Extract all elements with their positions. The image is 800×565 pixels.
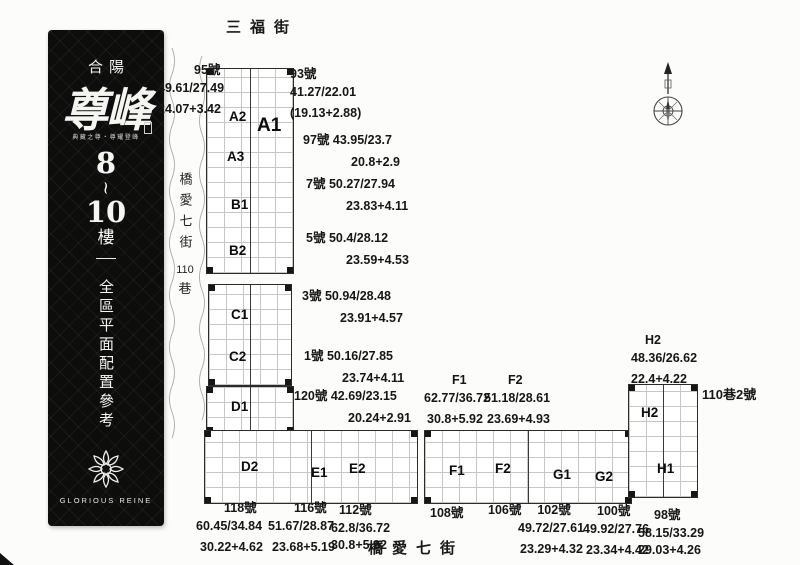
- building-block-h-plan: H2 H1: [628, 384, 698, 498]
- unit-label-h2: H2: [641, 405, 658, 420]
- annotation-h2: H2 48.36/26.62 22.4+4.22: [631, 332, 697, 389]
- unit-label-d1: D1: [231, 399, 248, 414]
- annotation-f2: F2 51.18/28.61 23.69+4.93: [484, 372, 550, 429]
- annotation-detail: 20.24+2.91: [348, 410, 411, 428]
- unit-label-b2: B2: [229, 243, 246, 258]
- annotation-no112: 112號 62.8/36.72 30.8+5.92: [331, 502, 390, 555]
- unit-label-h1: H1: [657, 461, 674, 476]
- annotation-no118: 118號 60.45/34.84 30.22+4.62: [196, 500, 263, 557]
- annotation-area: 49.72/27.61: [518, 520, 584, 538]
- annotation-detail: 23.69+4.93: [487, 411, 550, 429]
- annotation-detail: 30.8+5.92: [331, 537, 390, 555]
- unit-label-e1: E1: [311, 465, 328, 480]
- annotation-no3: 3號 50.94/28.48 23.91+4.57: [302, 288, 403, 327]
- unit-label-g2: G2: [595, 469, 613, 484]
- floor-range: 8 ~ 10 樓: [48, 148, 164, 249]
- unit-label-a1: A1: [257, 115, 281, 137]
- annotation-no93: 93號 41.27/22.01 (19.13+2.88): [290, 66, 361, 123]
- annotation-title: 97號: [303, 133, 329, 147]
- annotation-no1: 1號 50.16/27.85 23.74+4.11: [304, 348, 404, 387]
- brand-logo-text: GLORIOUS REINE: [48, 496, 164, 505]
- annotation-f1: F1 62.77/36.72 30.8+5.92: [424, 372, 490, 429]
- annotation-area: 43.95/23.7: [333, 133, 392, 147]
- unit-label-c1: C1: [231, 307, 248, 322]
- floor-suffix: 樓: [48, 227, 164, 249]
- unit-label-f2: F2: [495, 461, 511, 476]
- annotation-area: 62.77/36.72: [424, 390, 490, 408]
- annotation-title: 108號: [430, 505, 463, 523]
- annotation-area: 58.15/33.29: [638, 525, 704, 543]
- annotation-detail: 23.91+4.57: [340, 310, 403, 328]
- annotation-area: 60.45/34.84: [196, 518, 263, 536]
- annotation-title: F2: [508, 372, 550, 390]
- unit-label-d2: D2: [241, 459, 258, 474]
- annotation-title: 102號: [537, 502, 570, 520]
- annotation-title: 1號: [304, 349, 323, 363]
- compass-icon: [646, 58, 690, 134]
- annotation-area: 51.18/28.61: [484, 390, 550, 408]
- building-wing-de-plan: D2 E1 E2: [204, 430, 418, 504]
- annotation-area: 48.36/26.62: [631, 350, 697, 368]
- annotation-detail: 23.29+4.32: [520, 541, 584, 559]
- annotation-no106-102: 106號 102號 49.72/27.61 23.29+4.32: [488, 502, 584, 559]
- building-tower-c-plan: C1 C2: [208, 284, 292, 386]
- annotation-title: 106號: [488, 502, 521, 520]
- annotation-detail: 30.8+5.92: [427, 411, 490, 429]
- annotation-no116: 116號 51.67/28.87 23.68+5.19: [268, 500, 335, 557]
- rosette-icon: [86, 448, 126, 490]
- floor-range-end: 10: [48, 197, 164, 227]
- annotation-detail: 23.74+4.11: [342, 370, 404, 388]
- building-wing-fg-plan: F1 F2 G1 G2: [424, 430, 632, 504]
- annotation-detail: 23.68+5.19: [272, 539, 335, 557]
- annotation-area: 50.4/28.12: [329, 231, 388, 245]
- annotation-no5: 5號 50.4/28.12 23.59+4.53: [306, 230, 409, 269]
- annotation-title: 112號: [339, 502, 390, 520]
- annotation-no95: 95號 49.61/27.49 24.07+3.42: [158, 62, 224, 119]
- annotation-detail: 30.22+4.62: [200, 539, 263, 557]
- annotation-area: 42.69/23.15: [331, 389, 397, 403]
- annotation-title: 7號: [306, 177, 325, 191]
- unit-label-g1: G1: [553, 467, 571, 482]
- project-banner: 合陽 尊峰 典藏之尊・尊耀登峰 8 ~ 10 樓 全區平面配置參考圖: [48, 30, 164, 526]
- unit-label-f1: F1: [449, 463, 465, 478]
- annotation-detail: (19.13+2.88): [290, 105, 361, 123]
- annotation-area: 50.27/27.94: [329, 177, 395, 191]
- annotation-detail: 23.83+4.11: [346, 198, 408, 216]
- floor-range-start: 8: [48, 148, 164, 178]
- annotation-detail: 20.8+2.9: [351, 154, 400, 172]
- annotation-no97: 97號 43.95/23.7 20.8+2.9: [303, 132, 400, 171]
- annotation-detail: 24.07+3.42: [158, 101, 224, 119]
- unit-label-c2: C2: [229, 349, 246, 364]
- annotation-area: 49.61/27.49: [158, 80, 224, 98]
- annotation-title: 116號: [294, 500, 335, 518]
- unit-label-b1: B1: [231, 197, 248, 212]
- annotation-area: 62.8/36.72: [331, 520, 390, 538]
- annotation-title: 93號: [290, 66, 361, 84]
- banner-divider: [96, 258, 116, 259]
- annotation-title: H2: [645, 332, 697, 350]
- annotation-title: 98號: [654, 507, 704, 525]
- street-name-top: 三福街: [226, 16, 298, 37]
- annotation-title: 118號: [224, 500, 263, 518]
- annotation-title: 95號: [194, 62, 224, 80]
- site-plan-sheet: 合陽 尊峰 典藏之尊・尊耀登峰 8 ~ 10 樓 全區平面配置參考圖: [0, 0, 800, 565]
- annotation-title: 5號: [306, 231, 325, 245]
- building-tower-d-plan: D1: [206, 386, 294, 434]
- annotation-detail: 29.03+4.26: [638, 542, 704, 560]
- unit-label-a3: A3: [227, 149, 244, 164]
- annotation-no98: 98號 58.15/33.29 29.03+4.26: [638, 507, 704, 560]
- annotation-detail: 23.59+4.53: [346, 252, 409, 270]
- unit-label-a2: A2: [229, 109, 246, 124]
- tilde-glyph: ~: [99, 180, 113, 195]
- lane-address-label: 110巷2號: [702, 386, 756, 404]
- annotation-area: 51.67/28.87: [268, 518, 335, 536]
- annotation-no7: 7號 50.27/27.94 23.83+4.11: [306, 176, 408, 215]
- project-tagline: 典藏之尊・尊耀登峰: [48, 132, 164, 141]
- annotation-area: 50.94/28.48: [325, 289, 391, 303]
- annotation-detail: 22.4+4.22: [631, 371, 697, 389]
- annotation-title: 3號: [302, 289, 321, 303]
- annotation-no108: 108號: [430, 505, 463, 523]
- annotation-no120: 120號 42.69/23.15 20.24+2.91: [294, 388, 411, 427]
- annotation-area: 50.16/27.85: [327, 349, 393, 363]
- annotation-area: 41.27/22.01: [290, 84, 361, 102]
- unit-label-e2: E2: [349, 461, 366, 476]
- sheet-subtitle: 全區平面配置參考圖: [48, 270, 164, 440]
- scan-corner-artifact: [0, 553, 14, 565]
- annotation-title: 120號: [294, 389, 327, 403]
